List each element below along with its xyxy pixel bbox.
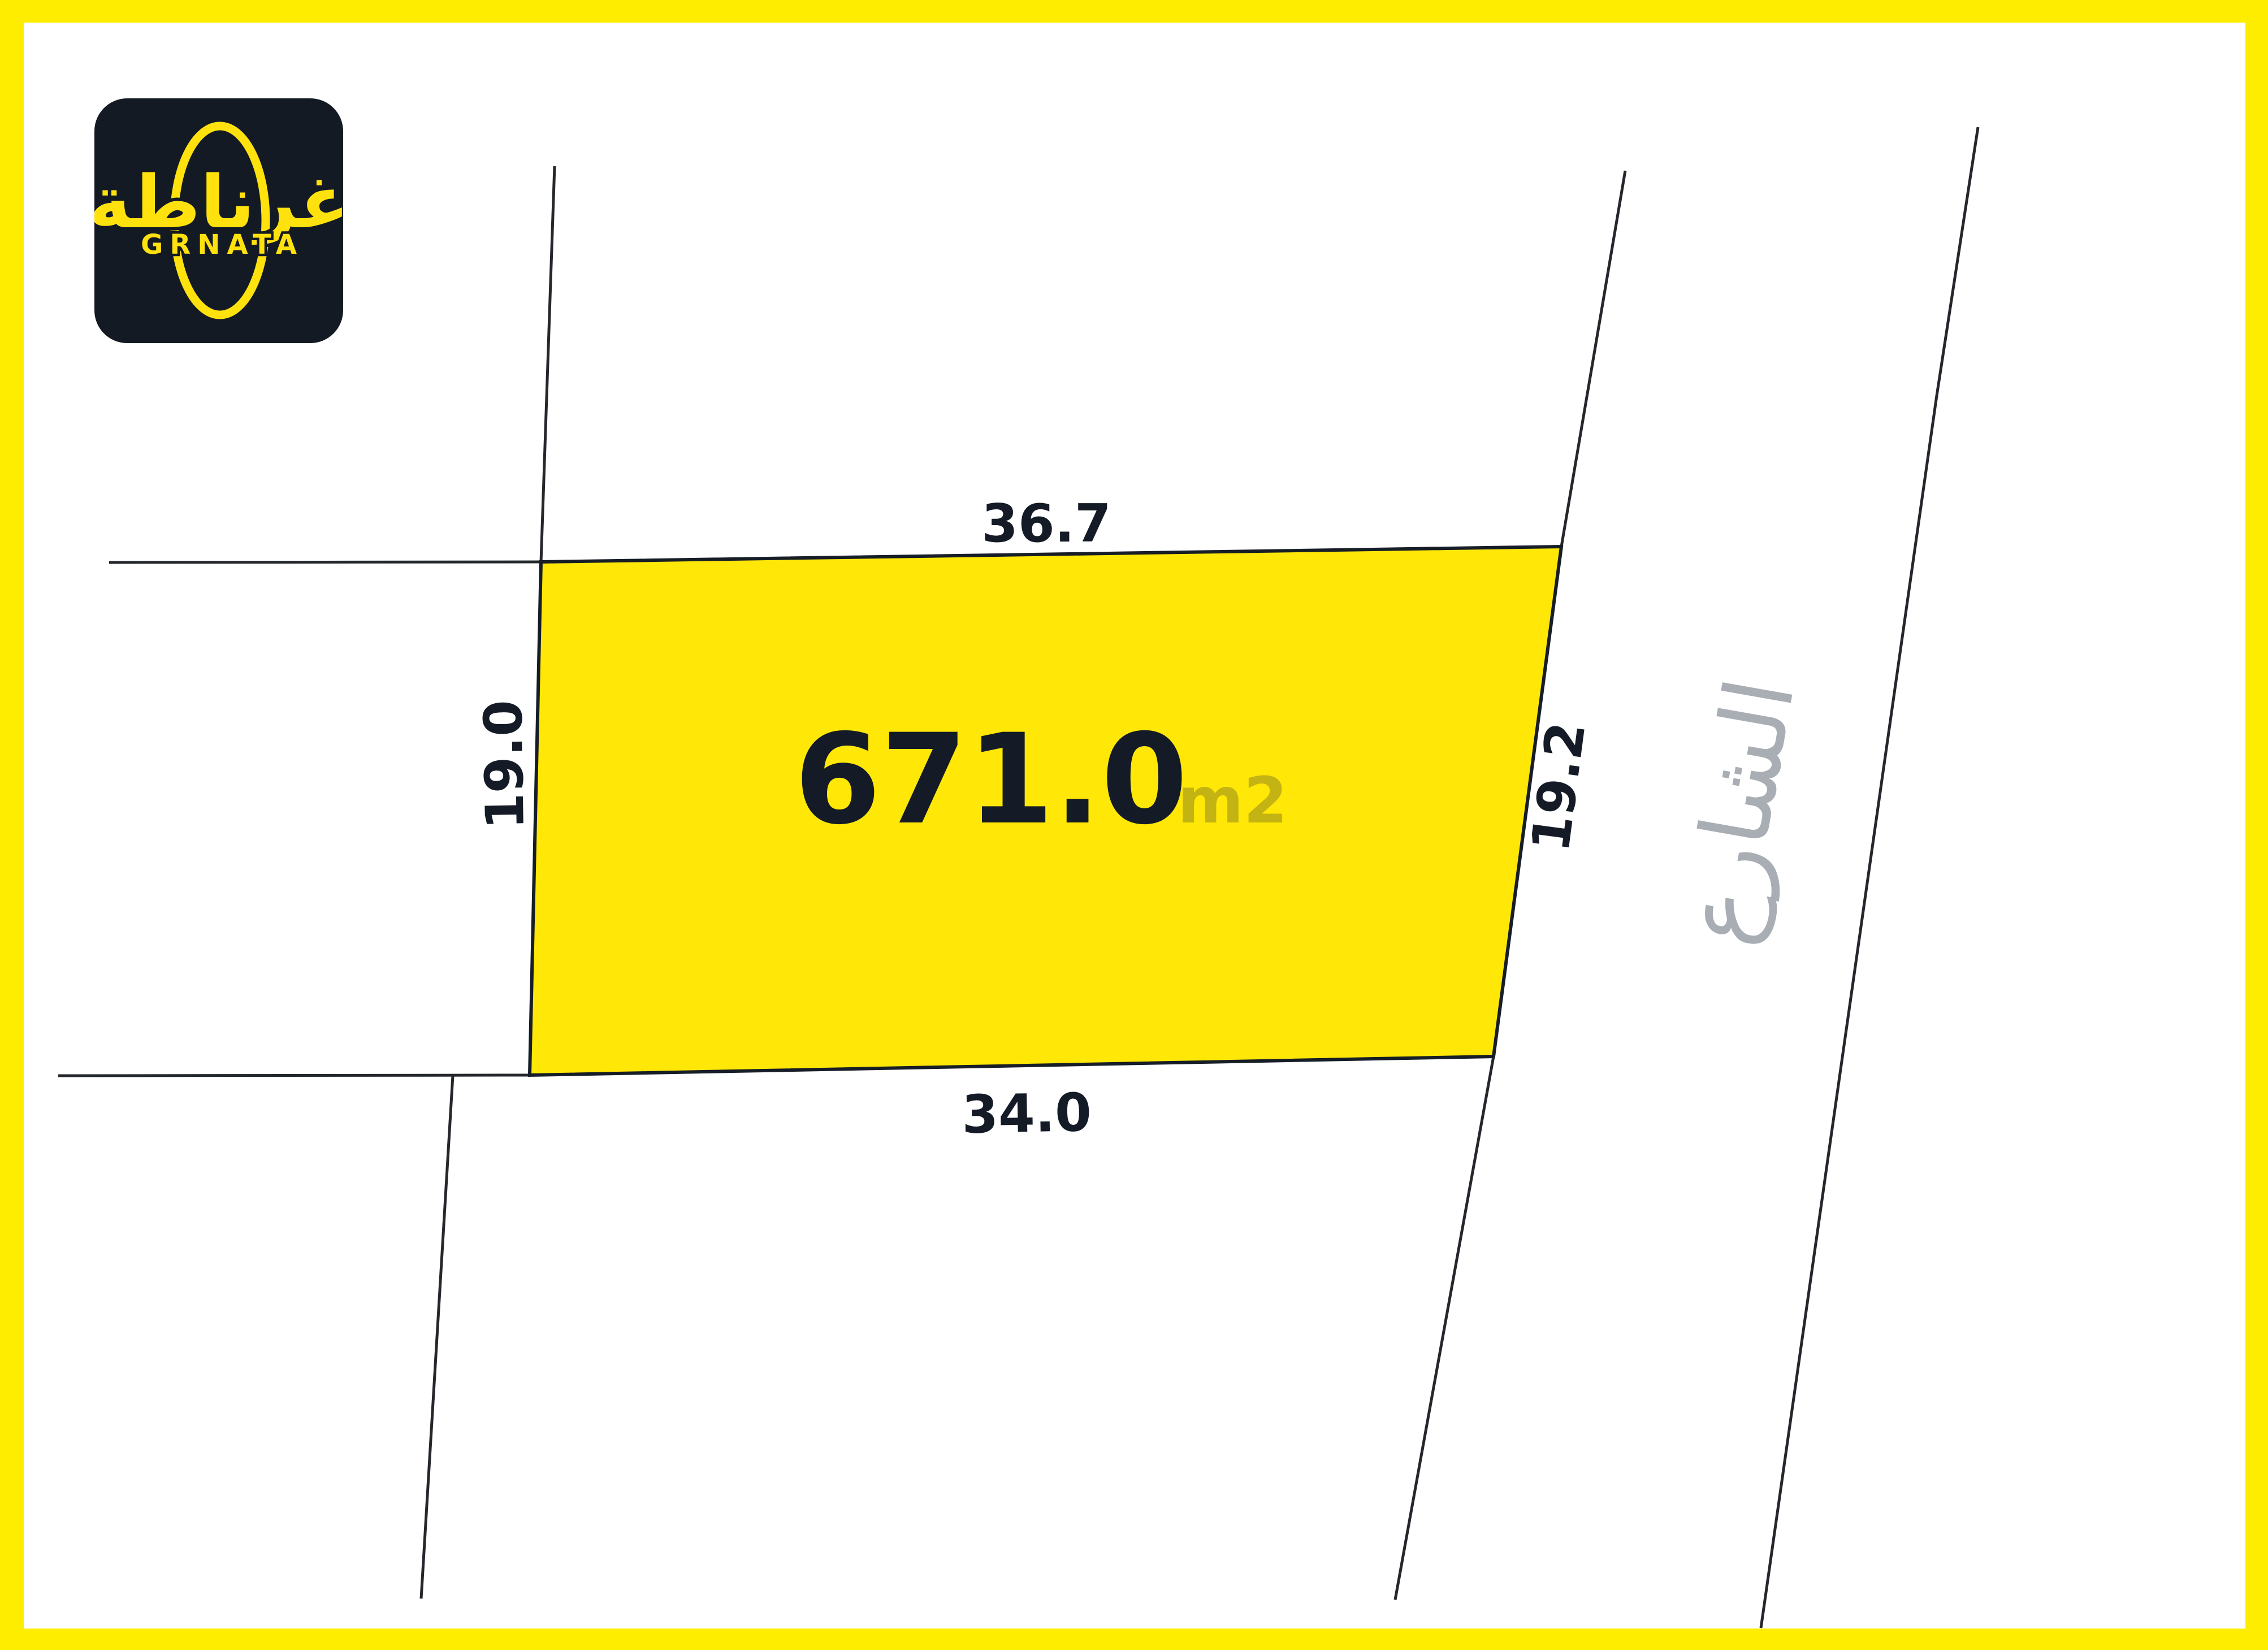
grnata-logo-icon: غرناطة GRNATA	[94, 98, 343, 343]
boundary-line-lower-left-diagonal	[421, 1076, 453, 1599]
dimension-label-bottom: 34.0	[961, 1082, 1092, 1145]
street-label: الشارع	[1663, 671, 1816, 952]
parcel-area-value: 671.0	[794, 707, 1188, 852]
plot-map-canvas: 36.7 19.0 19.2 34.0 671.0 m2 الشارع غرنا…	[0, 0, 2268, 1650]
dimension-label-left: 19.0	[473, 699, 536, 830]
boundary-line-upper-left	[541, 166, 555, 562]
boundary-line-left-bottom	[58, 1075, 530, 1076]
grnata-logo: غرناطة GRNATA	[94, 98, 343, 343]
dimension-label-top: 36.7	[981, 493, 1111, 554]
logo-latin-wordmark: GRNATA	[141, 229, 304, 261]
road-edge-line-far	[1761, 127, 1978, 1628]
parcel-area-unit: m2	[1178, 764, 1288, 838]
boundary-line-left-top	[109, 562, 541, 562]
